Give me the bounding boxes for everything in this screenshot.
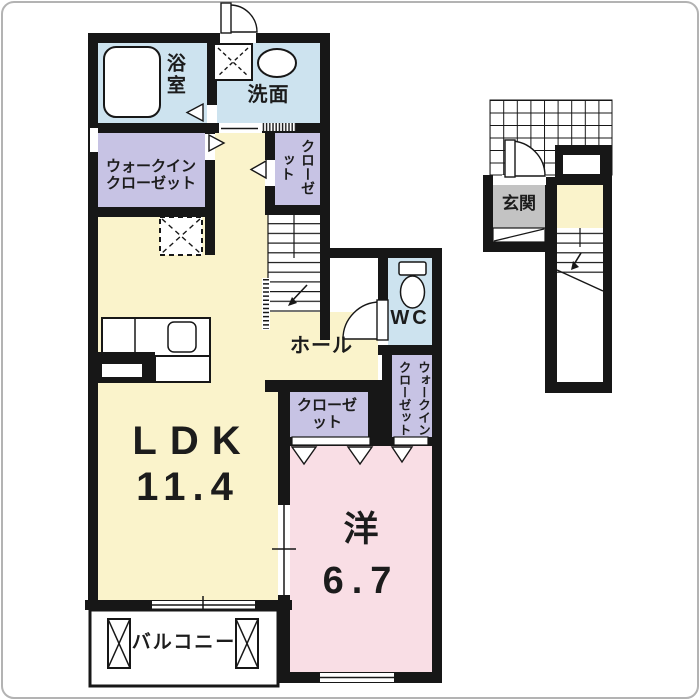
stairwell-window bbox=[563, 155, 600, 174]
hall-door-leaf bbox=[377, 300, 388, 340]
stairs-entrance bbox=[557, 228, 603, 291]
top-door-swing bbox=[230, 5, 257, 32]
floor-plan-canvas: LDK 11.4 洋 6.7 バルコニー ホール WC 玄関 浴室 洗面 ウォー… bbox=[0, 0, 700, 700]
corridor-floor bbox=[215, 133, 265, 215]
washroom-label: 洗面 bbox=[217, 84, 320, 107]
kitchen-base-slot bbox=[102, 364, 142, 377]
entrance-label: 玄関 bbox=[493, 194, 545, 214]
room-ldk-floor bbox=[98, 215, 278, 600]
kitchen-sink bbox=[168, 322, 196, 352]
closet-lower-label: クローゼット bbox=[297, 397, 357, 432]
hall-door-swing bbox=[343, 302, 380, 339]
balcony-label: バルコニー bbox=[90, 632, 278, 654]
kitchen-counter-return bbox=[155, 356, 210, 382]
room-western-floor bbox=[290, 445, 432, 672]
entrance-door-leaf bbox=[505, 140, 515, 177]
ldk-label: LDK bbox=[98, 418, 278, 464]
hall-label: ホール bbox=[265, 335, 378, 358]
closet-upper-label: クローゼット bbox=[274, 138, 318, 196]
washbasin bbox=[258, 49, 296, 77]
top-door-leaf bbox=[221, 3, 231, 33]
bath-door-opening bbox=[207, 105, 217, 123]
top-door-opening bbox=[220, 33, 256, 43]
ldk-size-label: 11.4 bbox=[98, 464, 278, 510]
bath-label: 浴室 bbox=[163, 53, 185, 97]
closet-lower-slider bbox=[292, 437, 370, 445]
walkin-closet-left-label: ウォークインクローゼット bbox=[102, 158, 200, 193]
toilet-tank bbox=[399, 262, 426, 275]
bathtub bbox=[104, 47, 160, 117]
washroom-folding-door bbox=[262, 123, 296, 131]
western-room-label: 洋 bbox=[290, 510, 432, 550]
walkin-closet-right-label: ウォークインクローゼット bbox=[390, 357, 432, 439]
wc-label: WC bbox=[388, 307, 432, 330]
western-room-size-label: 6.7 bbox=[290, 560, 432, 604]
toilet-bowl bbox=[401, 276, 425, 308]
stair-landing-floor bbox=[555, 181, 603, 228]
left-wall-window bbox=[90, 128, 98, 152]
